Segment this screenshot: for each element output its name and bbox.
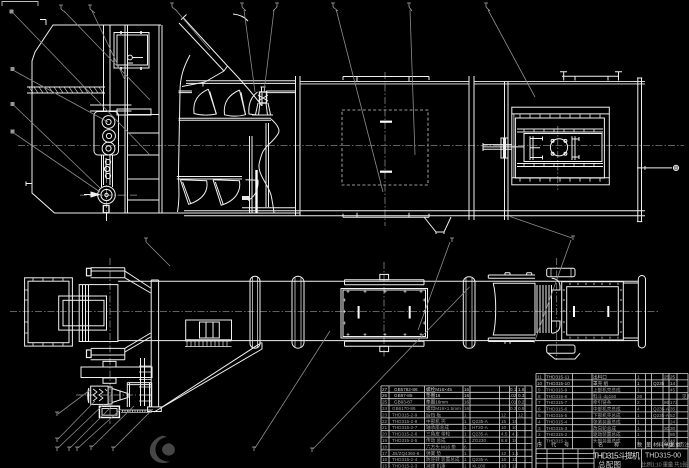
svg-text:THD315斗提机: THD315斗提机 — [593, 451, 640, 461]
svg-text:张紧装置总成: 张紧装置总成 — [593, 418, 621, 425]
svg-text:量: 量 — [646, 442, 651, 449]
svg-text:30: 30 — [664, 426, 670, 431]
svg-text:17: 17 — [382, 451, 388, 456]
svg-text:1: 1 — [637, 413, 640, 418]
svg-text:1: 1 — [637, 381, 640, 386]
svg-text:25: 25 — [382, 400, 388, 405]
svg-text:1: 1 — [464, 464, 467, 468]
svg-text:1.1: 1.1 — [512, 451, 519, 456]
svg-text:THD315-2-5: THD315-2-5 — [392, 438, 418, 443]
svg-text:16: 16 — [464, 387, 470, 392]
svg-text:垫圈16mm: 垫圈16mm — [426, 399, 448, 406]
svg-text:4: 4 — [538, 419, 541, 424]
svg-text:19: 19 — [382, 438, 388, 443]
svg-text:料: 料 — [658, 441, 663, 449]
svg-text:3: 3 — [538, 426, 541, 431]
svg-text:JB/ZQ4360-8: JB/ZQ4360-8 — [392, 451, 420, 456]
svg-text:6: 6 — [538, 407, 541, 412]
svg-text:GB6170-86: GB6170-86 — [392, 406, 416, 411]
svg-text:THD315-4: THD315-4 — [546, 419, 568, 424]
svg-text:12: 12 — [518, 412, 524, 417]
svg-text:ZG230: ZG230 — [472, 438, 486, 443]
svg-text:4.5: 4.5 — [501, 432, 508, 437]
svg-text:25: 25 — [664, 375, 670, 380]
svg-text:中部机壳总成: 中部机壳总成 — [593, 406, 621, 413]
svg-text:XL160: XL160 — [472, 464, 486, 468]
svg-text:23: 23 — [382, 412, 388, 417]
svg-text:11: 11 — [512, 457, 517, 462]
svg-text:11: 11 — [512, 464, 517, 468]
svg-text:10: 10 — [512, 425, 518, 430]
svg-text:.02: .02 — [510, 393, 517, 398]
svg-text:减速 机罩: 减速 机罩 — [426, 463, 446, 468]
svg-text:15: 15 — [512, 419, 518, 424]
svg-text:16: 16 — [501, 457, 507, 462]
svg-text:驱动装置总成: 驱动装置总成 — [593, 431, 621, 438]
svg-text:10: 10 — [537, 381, 543, 386]
svg-text:号: 号 — [564, 442, 569, 449]
svg-text:称: 称 — [614, 441, 619, 449]
svg-text:4.5: 4.5 — [512, 432, 519, 437]
svg-text:牵引链条: 牵引链条 — [593, 399, 612, 406]
svg-text:7: 7 — [538, 400, 541, 405]
svg-text:出料口: 出料口 — [593, 374, 607, 381]
svg-text:THD315-2-3: THD315-2-3 — [392, 464, 418, 468]
svg-text:代: 代 — [551, 441, 557, 449]
svg-text:THD315-10: THD315-10 — [546, 381, 570, 386]
svg-text:总配图: 总配图 — [598, 459, 621, 468]
svg-text:15: 15 — [501, 419, 507, 424]
svg-text:Q235-A: Q235-A — [472, 419, 489, 424]
svg-text:THD315-2-6: THD315-2-6 — [392, 432, 418, 437]
svg-text:弹簧 垫: 弹簧 垫 — [426, 450, 441, 457]
svg-text:螺母M16×1.5mm: 螺母M16×1.5mm — [426, 405, 461, 412]
svg-text:0.5: 0.5 — [518, 406, 525, 411]
svg-text:罩壳 组: 罩壳 组 — [593, 380, 608, 387]
svg-text:1: 1 — [464, 438, 467, 443]
svg-text:轴承座总成: 轴承座总成 — [426, 424, 449, 431]
svg-text:0.3: 0.3 — [510, 406, 517, 411]
svg-text:比例1:10 重量 共1张: 比例1:10 重量 共1张 — [642, 461, 689, 468]
svg-text:1: 1 — [637, 419, 640, 424]
svg-text:86: 86 — [664, 400, 670, 405]
svg-text:Q235-A: Q235-A — [472, 432, 489, 437]
svg-text:THD315-11: THD315-11 — [546, 375, 570, 380]
svg-text:1: 1 — [464, 432, 467, 437]
svg-text:Q235-A: Q235-A — [653, 407, 670, 412]
svg-text:改向轮总成: 改向轮总成 — [593, 425, 616, 432]
svg-text:2: 2 — [538, 432, 541, 437]
svg-text:15: 15 — [382, 464, 388, 468]
svg-text:26: 26 — [382, 393, 388, 398]
svg-text:THD315-00: THD315-00 — [645, 453, 681, 460]
svg-text:GB93-87: GB93-87 — [394, 400, 413, 405]
svg-text:数: 数 — [637, 441, 643, 449]
svg-text:16: 16 — [464, 393, 470, 398]
svg-text:27: 27 — [382, 387, 388, 392]
svg-text:16: 16 — [464, 406, 470, 411]
svg-text:传动 总成: 传动 总成 — [426, 437, 446, 444]
svg-text:26: 26 — [637, 394, 643, 399]
svg-text:1: 1 — [637, 387, 640, 392]
svg-text:14: 14 — [670, 381, 676, 386]
svg-text:THD315-3: THD315-3 — [546, 426, 568, 431]
svg-text:45: 45 — [670, 387, 676, 392]
svg-text:10: 10 — [501, 464, 507, 468]
svg-text:THD315-2-9: THD315-2-9 — [392, 412, 418, 417]
svg-text:HT20-A: HT20-A — [472, 425, 489, 430]
svg-text:GB97-85: GB97-85 — [394, 393, 413, 398]
svg-text:下部机壳总成: 下部机壳总成 — [593, 412, 621, 419]
svg-text:1: 1 — [464, 451, 467, 456]
svg-text:THD315-5: THD315-5 — [546, 413, 568, 418]
svg-text:六方头 M16 垫: 六方头 M16 垫 — [426, 443, 456, 450]
svg-text:中部机 壳: 中部机 壳 — [426, 418, 446, 425]
svg-text:GB5782-86: GB5782-86 — [394, 387, 418, 392]
svg-text:1: 1 — [464, 425, 467, 430]
svg-text:21: 21 — [382, 425, 388, 430]
svg-text:9: 9 — [538, 387, 541, 392]
svg-text:1: 1 — [637, 432, 640, 437]
svg-text:16: 16 — [464, 400, 470, 405]
svg-text:THD315-2-7: THD315-2-7 — [392, 425, 418, 430]
svg-text:12: 12 — [501, 451, 507, 456]
svg-text:11: 11 — [537, 375, 542, 380]
svg-text:52: 52 — [670, 413, 676, 418]
svg-text:18: 18 — [512, 438, 518, 443]
svg-text:页注: 页注 — [679, 441, 689, 449]
svg-text:8: 8 — [538, 394, 541, 399]
svg-text:10: 10 — [501, 425, 507, 430]
svg-text:THD315-7: THD315-7 — [546, 400, 568, 405]
svg-text:THD315-2-8: THD315-2-8 — [392, 419, 418, 424]
svg-text:4: 4 — [637, 407, 640, 412]
svg-text:16: 16 — [382, 457, 388, 462]
svg-text:1: 1 — [464, 412, 467, 417]
svg-text:0.1: 0.1 — [510, 387, 517, 392]
svg-text:2: 2 — [637, 400, 640, 405]
svg-text:防逆转 装置总成: 防逆转 装置总成 — [426, 456, 460, 463]
svg-text:料斗 dg160: 料斗 dg160 — [593, 393, 617, 400]
svg-text:THD315-6: THD315-6 — [546, 407, 568, 412]
svg-text:35: 35 — [670, 407, 676, 412]
svg-text:三角皮 带轮: 三角皮 带轮 — [426, 431, 451, 438]
svg-text:1: 1 — [637, 375, 640, 380]
svg-text:Q235: Q235 — [653, 381, 665, 386]
svg-text:1: 1 — [464, 419, 467, 424]
svg-text:8.6: 8.6 — [501, 438, 508, 443]
svg-text:12: 12 — [501, 412, 507, 417]
svg-text:1.6: 1.6 — [518, 387, 525, 392]
svg-text:30: 30 — [670, 426, 676, 431]
svg-text:THD315-9: THD315-9 — [546, 387, 568, 392]
svg-text:25: 25 — [670, 375, 676, 380]
svg-text:172: 172 — [670, 400, 678, 405]
svg-text:1: 1 — [637, 426, 640, 431]
svg-text:Q235-A: Q235-A — [653, 413, 670, 418]
svg-text:24: 24 — [382, 406, 388, 411]
svg-text:0.3: 0.3 — [518, 393, 525, 398]
svg-text:垫圈16: 垫圈16 — [426, 392, 441, 399]
svg-text:THD315-2-4: THD315-2-4 — [392, 457, 418, 462]
svg-text:1: 1 — [464, 457, 467, 462]
svg-text:.01: .01 — [510, 400, 517, 405]
svg-text:0.2: 0.2 — [518, 400, 525, 405]
svg-text:20: 20 — [382, 432, 388, 437]
svg-text:18: 18 — [382, 444, 388, 449]
svg-text:序: 序 — [537, 441, 542, 449]
svg-text:上部机壳总成: 上部机壳总成 — [593, 386, 621, 393]
svg-text:5: 5 — [538, 413, 541, 418]
svg-text:后挡 板: 后挡 板 — [426, 411, 441, 418]
svg-text:24: 24 — [670, 419, 676, 424]
svg-text:22: 22 — [382, 419, 388, 424]
svg-text:螺栓M16×45: 螺栓M16×45 — [426, 386, 452, 393]
svg-text:THD315-8: THD315-8 — [546, 394, 568, 399]
svg-text:THD315-2: THD315-2 — [546, 432, 568, 437]
svg-text:名: 名 — [598, 441, 603, 449]
svg-text:6: 6 — [464, 444, 467, 449]
svg-text:Q235-A: Q235-A — [472, 457, 489, 462]
svg-text:86: 86 — [670, 432, 676, 437]
